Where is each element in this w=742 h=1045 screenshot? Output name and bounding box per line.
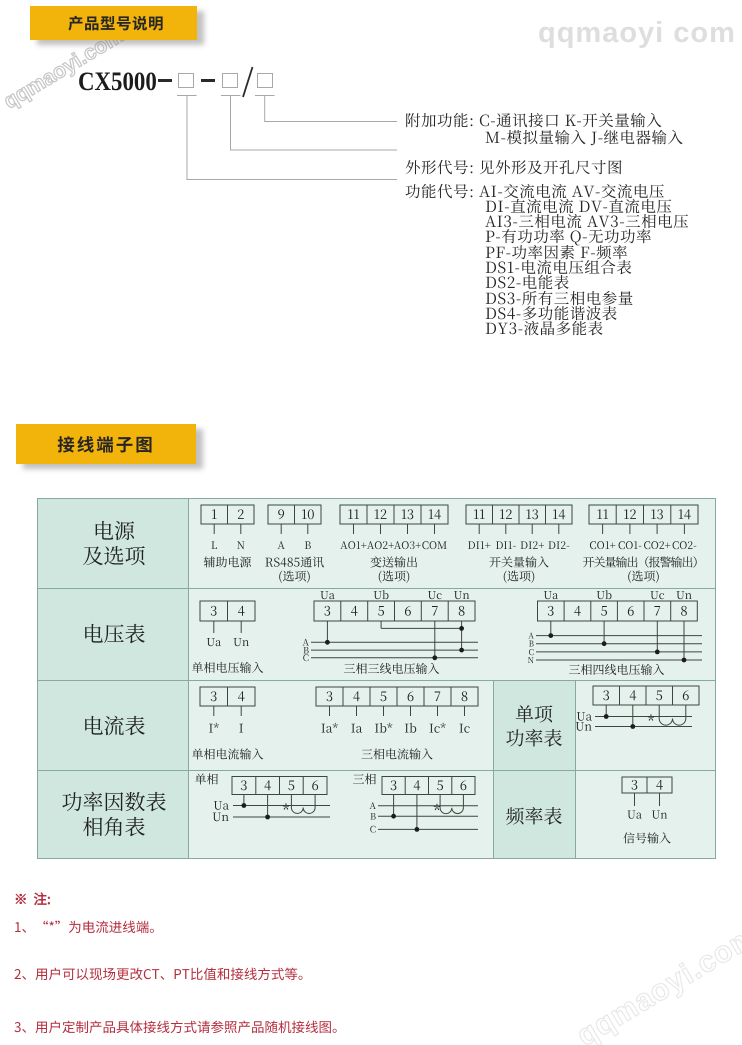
svg-text:Ua: Ua bbox=[627, 807, 643, 823]
svg-text:*: * bbox=[647, 710, 654, 731]
svg-text:4: 4 bbox=[656, 775, 663, 794]
svg-text:信号输入: 信号输入 bbox=[623, 829, 671, 846]
svg-text:10: 10 bbox=[301, 504, 314, 523]
svg-text:3: 3 bbox=[210, 686, 217, 705]
svg-text:13: 13 bbox=[401, 504, 414, 523]
svg-text:3: 3 bbox=[240, 775, 247, 794]
svg-text:14: 14 bbox=[428, 504, 441, 523]
svg-text:Un: Un bbox=[575, 719, 592, 735]
svg-text:*: * bbox=[433, 800, 440, 821]
svg-text:3: 3 bbox=[547, 601, 554, 620]
svg-text:B: B bbox=[304, 538, 311, 553]
svg-text:3: 3 bbox=[326, 686, 333, 705]
svg-text:AO3+: AO3+ bbox=[394, 538, 422, 553]
svg-text:功率表: 功率表 bbox=[505, 724, 562, 751]
svg-text:11: 11 bbox=[473, 504, 485, 523]
svg-text:8: 8 bbox=[458, 601, 465, 620]
svg-text:C: C bbox=[370, 823, 376, 836]
svg-text:Un: Un bbox=[676, 587, 692, 603]
svg-text:13: 13 bbox=[650, 504, 663, 523]
svg-text:3: 3 bbox=[324, 601, 331, 620]
svg-text:单相电流输入: 单相电流输入 bbox=[191, 745, 263, 762]
svg-text:7: 7 bbox=[654, 601, 661, 620]
svg-text:三相三线电压输入: 三相三线电压输入 bbox=[343, 660, 439, 677]
svg-text:DI1+: DI1+ bbox=[468, 538, 491, 553]
svg-text:4: 4 bbox=[238, 601, 245, 620]
svg-text:C: C bbox=[303, 651, 309, 664]
svg-text:4: 4 bbox=[264, 775, 271, 794]
svg-text:14: 14 bbox=[678, 504, 691, 523]
svg-text:9: 9 bbox=[278, 504, 285, 523]
svg-text:13: 13 bbox=[526, 504, 539, 523]
svg-text:三相四线电压输入: 三相四线电压输入 bbox=[568, 661, 664, 678]
svg-text:11: 11 bbox=[347, 504, 359, 523]
svg-text:8: 8 bbox=[461, 686, 468, 705]
svg-text:Un: Un bbox=[233, 634, 249, 650]
svg-text:AO2+: AO2+ bbox=[367, 538, 395, 553]
svg-text:Ic: Ic bbox=[459, 719, 470, 736]
svg-text:5: 5 bbox=[436, 775, 443, 794]
svg-text:5: 5 bbox=[656, 685, 663, 704]
svg-text:8: 8 bbox=[680, 601, 687, 620]
svg-text:5: 5 bbox=[600, 601, 607, 620]
svg-text:单相: 单相 bbox=[194, 770, 218, 787]
svg-text:14: 14 bbox=[552, 504, 565, 523]
svg-text:7: 7 bbox=[434, 686, 441, 705]
svg-text:辅助电源: 辅助电源 bbox=[203, 553, 252, 570]
svg-text:频率表: 频率表 bbox=[505, 802, 562, 829]
svg-text:三相: 三相 bbox=[352, 770, 376, 787]
svg-text:(选项): (选项) bbox=[627, 567, 660, 584]
svg-text:及选项: 及选项 bbox=[83, 541, 147, 571]
svg-text:A: A bbox=[277, 538, 285, 553]
svg-text:Uc: Uc bbox=[650, 587, 665, 603]
svg-text:3: 3 bbox=[210, 601, 217, 620]
svg-text:Uc: Uc bbox=[427, 587, 442, 603]
svg-text:3: 3 bbox=[603, 685, 610, 704]
svg-text:4: 4 bbox=[629, 685, 636, 704]
svg-text:11: 11 bbox=[596, 504, 608, 523]
svg-text:Ua: Ua bbox=[320, 587, 336, 603]
svg-text:6: 6 bbox=[627, 601, 634, 620]
svg-text:单项: 单项 bbox=[515, 700, 554, 727]
svg-text:CO1-: CO1- bbox=[618, 538, 642, 553]
svg-text:5: 5 bbox=[377, 601, 384, 620]
svg-text:6: 6 bbox=[404, 601, 411, 620]
svg-text:3: 3 bbox=[631, 775, 638, 794]
svg-text:*: * bbox=[282, 799, 289, 820]
svg-text:Un: Un bbox=[651, 807, 667, 823]
svg-text:CO1+: CO1+ bbox=[589, 538, 615, 553]
svg-text:6: 6 bbox=[311, 775, 318, 794]
svg-text:N: N bbox=[528, 655, 535, 666]
svg-text:Ib: Ib bbox=[404, 719, 417, 736]
svg-text:COM: COM bbox=[422, 538, 448, 553]
svg-text:Ib*: Ib* bbox=[374, 719, 393, 736]
svg-text:Ua: Ua bbox=[543, 587, 559, 603]
svg-text:CO2+: CO2+ bbox=[643, 538, 670, 553]
svg-text:12: 12 bbox=[374, 504, 387, 523]
svg-text:4: 4 bbox=[351, 601, 358, 620]
svg-text:3: 3 bbox=[390, 775, 397, 794]
svg-text:单相电压输入: 单相电压输入 bbox=[191, 659, 263, 676]
svg-text:DI1-: DI1- bbox=[495, 538, 516, 553]
svg-text:5: 5 bbox=[380, 686, 387, 705]
svg-text:1: 1 bbox=[211, 504, 217, 523]
svg-text:7: 7 bbox=[431, 601, 438, 620]
svg-text:DI2-: DI2- bbox=[548, 538, 570, 553]
svg-text:Ua: Ua bbox=[206, 634, 222, 650]
svg-text:4: 4 bbox=[574, 601, 581, 620]
svg-text:5: 5 bbox=[288, 775, 295, 794]
svg-text:N: N bbox=[237, 538, 245, 553]
svg-text:电压表: 电压表 bbox=[83, 619, 146, 649]
svg-text:L: L bbox=[211, 538, 218, 553]
svg-text:Ic*: Ic* bbox=[429, 719, 446, 736]
svg-text:12: 12 bbox=[499, 504, 512, 523]
svg-text:CO2-: CO2- bbox=[672, 538, 697, 553]
svg-text:三相电流输入: 三相电流输入 bbox=[361, 745, 433, 762]
svg-text:12: 12 bbox=[623, 504, 636, 523]
svg-text:(选项): (选项) bbox=[503, 567, 536, 584]
svg-text:AO1+: AO1+ bbox=[340, 538, 367, 553]
svg-text:Ia*: Ia* bbox=[321, 719, 339, 736]
svg-text:B: B bbox=[370, 809, 376, 822]
svg-text:4: 4 bbox=[353, 686, 360, 705]
svg-text:(选项): (选项) bbox=[278, 567, 311, 584]
svg-text:(选项): (选项) bbox=[378, 567, 411, 584]
svg-text:4: 4 bbox=[238, 686, 245, 705]
svg-text:Un: Un bbox=[212, 809, 229, 825]
svg-text:相角表: 相角表 bbox=[83, 812, 146, 842]
svg-text:4: 4 bbox=[413, 775, 420, 794]
svg-text:DI2+: DI2+ bbox=[520, 538, 544, 553]
svg-text:6: 6 bbox=[407, 686, 414, 705]
svg-text:电流表: 电流表 bbox=[83, 711, 146, 741]
svg-text:Ia: Ia bbox=[351, 719, 363, 736]
svg-text:6: 6 bbox=[460, 775, 467, 794]
svg-text:Ub: Ub bbox=[596, 587, 612, 603]
svg-text:I*: I* bbox=[208, 719, 219, 736]
svg-text:I: I bbox=[239, 719, 244, 736]
svg-text:6: 6 bbox=[682, 685, 689, 704]
svg-text:2: 2 bbox=[237, 504, 244, 523]
svg-text:Ub: Ub bbox=[373, 587, 389, 603]
svg-text:Un: Un bbox=[454, 587, 470, 603]
